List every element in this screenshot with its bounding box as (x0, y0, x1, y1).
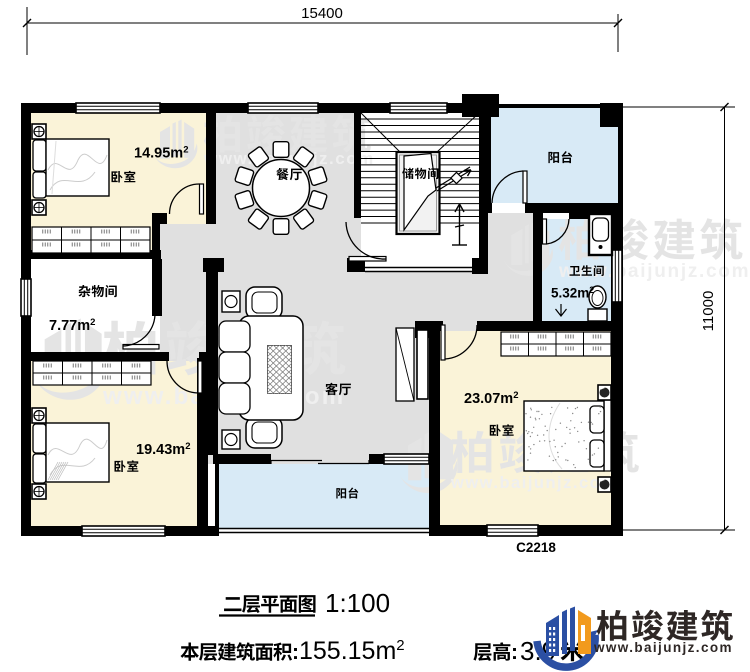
svg-text:19.43m2: 19.43m2 (136, 441, 190, 458)
svg-text:1:100: 1:100 (325, 588, 390, 618)
svg-text:C2218: C2218 (516, 540, 556, 555)
svg-text:www.baijunjz.com: www.baijunjz.com (593, 640, 733, 655)
svg-text:www.baijunjz.com: www.baijunjz.com (450, 474, 617, 492)
svg-text:7.77m2: 7.77m2 (49, 317, 95, 334)
svg-text:5.32m2: 5.32m2 (551, 285, 594, 301)
svg-text:155.15m2: 155.15m2 (299, 637, 405, 665)
svg-text:14.95m2: 14.95m2 (134, 145, 188, 162)
svg-text::: : (292, 641, 299, 664)
svg-text:11000: 11000 (700, 291, 717, 332)
svg-text:15400: 15400 (301, 5, 343, 22)
svg-text:23.07m2: 23.07m2 (464, 390, 518, 407)
svg-text::: : (511, 641, 518, 664)
